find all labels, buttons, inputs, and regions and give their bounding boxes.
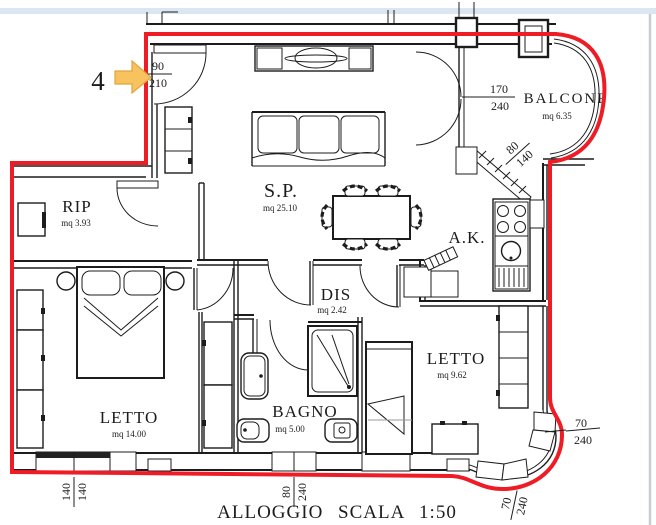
room-label-ak: A.K. (448, 228, 485, 247)
svg-text:240: 240 (295, 483, 309, 501)
wardrobe-bedroom2 (496, 306, 528, 408)
room-label-bagno: BAGNO (272, 402, 337, 421)
double-bed (57, 267, 184, 378)
room-label-balcone: BALCONE (524, 91, 609, 107)
dis-door (268, 261, 313, 305)
rip-cabinet (18, 203, 46, 236)
room-area-rip: mq 3.93 (61, 218, 91, 228)
unit-number: 4 (91, 66, 105, 96)
bedroom2-door (360, 265, 400, 307)
svg-text:70: 70 (498, 496, 514, 511)
tv-cabinet (255, 46, 373, 71)
single-bed (366, 342, 412, 454)
bedroom2-cabinet (432, 421, 478, 454)
room-label-dis: DIS (321, 285, 351, 304)
dim-kitchen-window: 80 140 (496, 132, 540, 176)
rip-door (117, 181, 158, 226)
shower (308, 326, 357, 396)
unit-marker: 4 (91, 61, 151, 96)
room-area-letto2: mq 9.62 (437, 370, 467, 380)
kitchen-unit (404, 147, 544, 297)
closet-corridor (202, 322, 232, 448)
room-label-letto2: LETTO (427, 349, 486, 368)
svg-text:210: 210 (149, 76, 167, 90)
room-area-letto1: mq 14.00 (112, 429, 147, 439)
svg-text:140: 140 (59, 483, 73, 501)
room-area-balcone: mq 6.35 (542, 111, 572, 121)
corner-windows (476, 412, 556, 480)
svg-text:240: 240 (513, 496, 530, 517)
room-area-dis: mq 2.42 (317, 305, 347, 315)
room-label-sp: S.P. (264, 180, 298, 202)
svg-text:240: 240 (491, 99, 509, 113)
balcony-door (416, 47, 464, 148)
dim-bed1-window: 140 140 (59, 477, 89, 507)
room-label-rip: RIP (62, 197, 91, 216)
room-label-letto1: LETTO (100, 408, 159, 427)
svg-text:80: 80 (279, 486, 293, 498)
room-area-bagno: mq 5.00 (275, 424, 305, 434)
dim-balcony-door: 170 240 (462, 82, 515, 113)
bidet (325, 419, 357, 442)
sofa (252, 112, 385, 166)
svg-text:140: 140 (75, 483, 89, 501)
svg-text:70: 70 (575, 416, 587, 430)
drawing-title: ALLOGGIO SCALA 1:50 (217, 502, 457, 523)
floor-plan-drawing: RIP mq 3.93 S.P. mq 25.10 BALCONE mq 6.3… (0, 0, 656, 525)
toilet (237, 419, 269, 442)
room-area-sp: mq 25.10 (263, 203, 298, 213)
svg-text:240: 240 (574, 433, 592, 447)
bathroom-sink (241, 353, 268, 399)
svg-text:90: 90 (152, 59, 164, 73)
hall-shelf (165, 107, 192, 173)
dining-table (322, 186, 421, 249)
wardrobe-bedroom1-left (17, 290, 45, 448)
svg-text:170: 170 (490, 82, 508, 96)
bedroom1-door (194, 268, 233, 310)
dim-bed2-window-bottom: 70 240 (496, 487, 532, 523)
floor-plan-page: RIP mq 3.93 S.P. mq 25.10 BALCONE mq 6.3… (0, 0, 656, 525)
window-top-edge (0, 8, 656, 14)
